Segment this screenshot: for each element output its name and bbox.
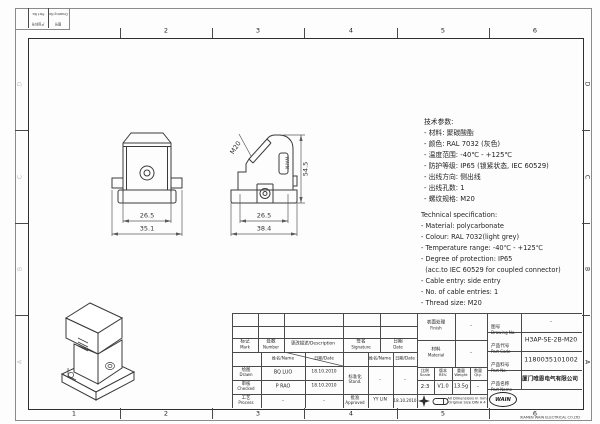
projection-symbol-icon (418, 395, 430, 407)
standard-date: - (404, 377, 406, 382)
specs-cn-line: - 颜色: RAL 7032 (灰色) (424, 141, 500, 148)
grid-label-bottom: 2 (164, 410, 168, 417)
table-line (258, 313, 259, 352)
drawingno-value: - (550, 319, 552, 325)
grid-tick (582, 223, 590, 224)
scale-label: 比例Scale (420, 360, 430, 386)
grid-label-top: 5 (441, 27, 445, 34)
grid-label-right: B (583, 267, 590, 271)
specs-en-line: - Temperature range: -40℃ - +125℃ (421, 245, 543, 252)
specs-cn-line: - 材料: 聚碳酸酯 (424, 130, 474, 137)
specs-cn-line: - 温度范围: -40℃ - +125℃ (424, 152, 512, 159)
grid-tick (212, 28, 213, 38)
drawn-name: BQ LUO (274, 370, 292, 375)
front-view (95, 128, 199, 258)
checked-name: P RAO (276, 384, 291, 389)
table-line (343, 313, 344, 408)
grid-label-top: 6 (533, 27, 537, 34)
specs-en-line: - Material: polycarbonate (421, 223, 504, 230)
date-subheader: 日期/Date (395, 357, 415, 362)
grid-label-bottom: 5 (441, 410, 445, 417)
approved-name: YY LIN (373, 399, 387, 404)
table-line (434, 367, 435, 394)
rev-label: 版本REV. (439, 360, 447, 386)
specs-cn-line: - 出线孔数: 1 (424, 185, 465, 192)
grid-label-right: A (583, 360, 590, 364)
table-line (232, 394, 417, 395)
process-label: 工艺Process (238, 387, 253, 415)
specs-cn-title: 技术参数: (424, 119, 453, 126)
grid-tick (304, 408, 305, 419)
grid-tick (397, 408, 398, 419)
finish-value: - (470, 323, 472, 329)
table-line (232, 338, 417, 339)
name-subheader: 姓名/Name (369, 357, 391, 362)
side-dim-inner: 26.5 (257, 212, 271, 219)
rev-description-header: 更改描述/Description (291, 343, 335, 348)
process-date: - (323, 398, 325, 403)
table-line (284, 313, 285, 352)
specs-cn-line: - 防护等级: IP65 (锁紧状态, IEC 60529) (424, 163, 549, 170)
material-value: - (470, 350, 472, 356)
grid-tick (304, 28, 305, 38)
specs-cn-line: - 出线方向: 侧出线 (424, 174, 481, 181)
specs-en-line: - Colour: RAL 7032(light grey) (421, 234, 519, 241)
table-line (487, 313, 488, 408)
table-line (28, 8, 29, 28)
specs-en-title: Technical specification: (421, 212, 497, 219)
specs-cn-line: - 螺纹规格: M20 (424, 196, 475, 203)
table-line (380, 313, 381, 352)
process-name: - (282, 398, 284, 403)
name-subheader: 姓名/Name (272, 357, 294, 362)
specs-en-line: - Cable entry: side entry (421, 278, 501, 285)
grid-tick (397, 28, 398, 38)
side-dim-height: 54.5 (302, 162, 309, 176)
table-line (455, 313, 456, 367)
weight-label: 重量Weight (454, 360, 467, 386)
checked-date: 18.10.2010 (311, 385, 336, 390)
grid-label-right: D (583, 82, 590, 87)
approved-label: 批准Approved (345, 387, 364, 415)
grid-label-left: D (18, 82, 25, 87)
front-dim-inner: 26.5 (140, 212, 154, 219)
table-line (232, 326, 417, 327)
finish-label: 表面处理Finish (427, 311, 445, 340)
scale-value: 2:3 (421, 384, 430, 390)
rev-mark-header: 标记Mark (240, 330, 250, 359)
grid-label-left: C (18, 175, 25, 179)
grid-label-top: 2 (164, 27, 168, 34)
grid-tick (15, 130, 28, 131)
grid-tick (489, 408, 490, 419)
grid-tick (120, 28, 121, 38)
date-subheader: 日期/Date (314, 357, 334, 362)
grid-label-bottom: 3 (256, 410, 260, 417)
dimension-note: All Dimensions in mmOriginal Size DIN A … (447, 389, 486, 412)
drawn-date: 18.10.2010 (311, 371, 336, 376)
grid-label-top: 4 (349, 27, 353, 34)
isometric-view (38, 292, 163, 410)
grid-label-bottom: 1 (72, 410, 76, 417)
side-dim-outer: 38.4 (257, 225, 271, 232)
qty-label: 数量Qty. (474, 360, 482, 386)
rev-signature-header: 签名Signature (351, 330, 370, 359)
grid-tick (582, 130, 590, 131)
corner-drawingno-label: 图号 Drawing No. (48, 4, 68, 32)
grid-tick (15, 315, 28, 316)
grid-tick (582, 315, 590, 316)
approved-date: 18.10.2010 (394, 399, 417, 403)
drawing-sheet: 产品料号 Part No. 图号 Drawing No. 2 3 4 5 6 1… (0, 0, 600, 424)
company-name: 厦门唯恩电气有限公司 XIAMEN WAIN ELECTRICAL CO.LTD (520, 341, 580, 424)
specs-en-line: - Thread size: M20 (421, 300, 482, 307)
specs-en-line: - No. of cable entries: 1 (421, 289, 498, 296)
specs-en-line: (acc.to IEC 60529 for coupled connector) (421, 267, 561, 274)
corner-partno-label: 产品料号 Part No. (32, 4, 45, 32)
standard-name: - (379, 377, 381, 382)
grid-label-right: C (583, 175, 590, 179)
table-line (261, 352, 262, 408)
grid-label-top: 3 (256, 27, 260, 34)
grid-tick (489, 28, 490, 38)
grid-label-left: A (18, 360, 25, 364)
company-logo: WAIN (489, 392, 517, 407)
grid-tick (212, 408, 213, 419)
grid-label-left: B (18, 267, 25, 271)
table-line (232, 366, 417, 367)
front-dim-outer: 35.1 (140, 225, 154, 232)
side-brand-label: WAIN (285, 157, 290, 170)
specs-en-line: - Degree of protection: IP65 (421, 256, 512, 263)
grid-tick (15, 223, 28, 224)
